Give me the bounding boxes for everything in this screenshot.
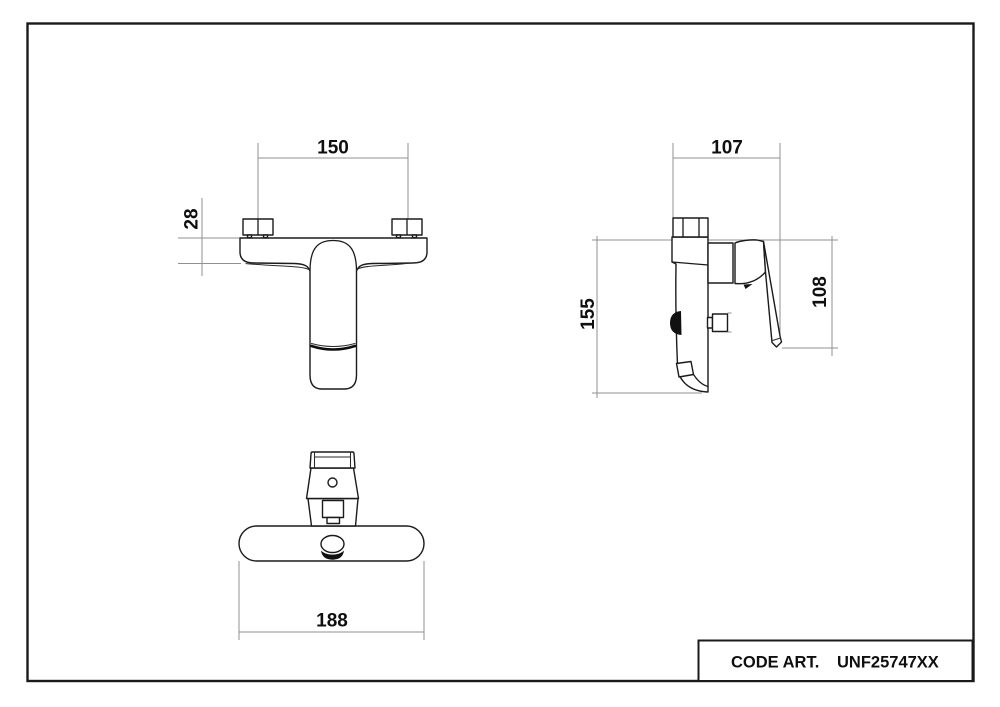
title-block: CODE ART. UNF25747XX [699,641,973,682]
front-right-nut [392,219,422,238]
front-view: 150 28 [178,138,427,390]
dim-label-length-188: 188 [316,611,348,632]
side-hex-nut [673,218,708,237]
front-left-nut [243,219,273,238]
dim-label-depth-107: 107 [711,138,743,159]
side-indicator-mark [744,284,753,289]
front-body-outline [240,238,427,389]
dim-label-width-150: 150 [317,138,349,159]
bottom-handle-screw-hole [328,478,337,487]
code-art-label: CODE ART. [731,654,819,672]
drawing-sheet: 150 28 107 155 108 [0,0,1000,707]
technical-drawing: 150 28 107 155 108 [0,0,1000,707]
dim-label-height-155: 155 [578,298,599,330]
side-view: 107 155 108 [578,138,838,399]
side-handle-cap [735,240,766,284]
side-hose-connector [708,313,732,332]
side-outlet-blob [670,311,682,335]
bottom-aerator [321,536,344,553]
code-art-value: UNF25747XX [837,654,939,672]
dim-label-plate-height-28: 28 [182,208,203,229]
side-cartridge-block [708,243,733,283]
side-lever-handle [764,242,782,348]
bottom-view: 188 [239,452,424,640]
dim-label-lever-height-108: 108 [810,276,831,308]
bottom-handle [307,452,359,526]
